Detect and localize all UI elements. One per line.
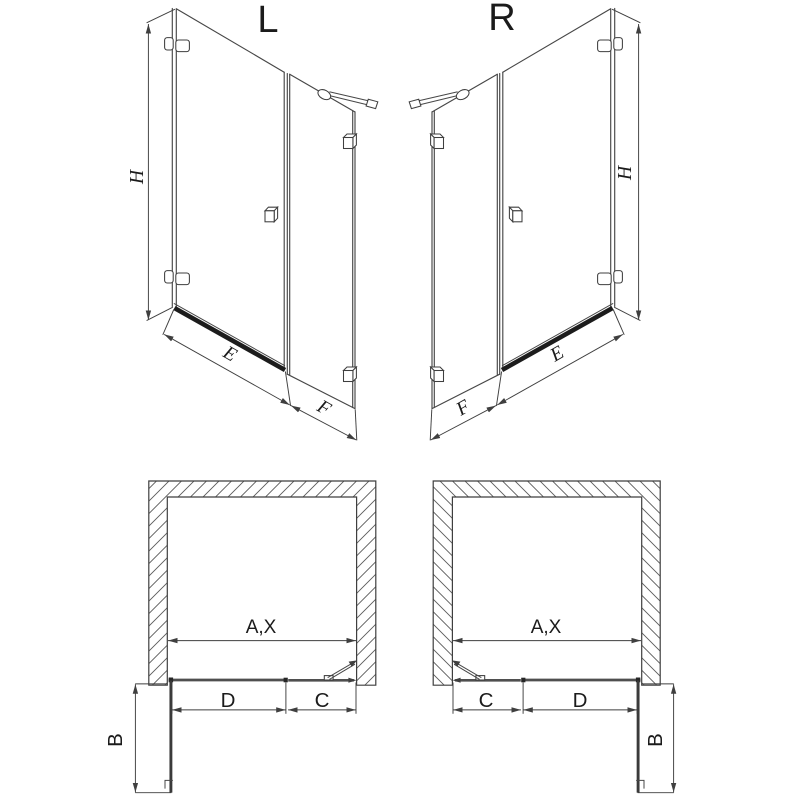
dim-label-h-right: H xyxy=(615,165,636,181)
dim-label-ax-left: A,X xyxy=(246,617,277,638)
view-iso-right xyxy=(409,9,640,441)
panel-wall-anchor-arrow xyxy=(348,678,356,683)
dim-label-e-right: E xyxy=(546,342,568,367)
wall-section-hatched xyxy=(149,481,376,685)
support-bar xyxy=(316,88,378,109)
dim-label-c-left: C xyxy=(315,689,330,712)
iso-right-linework xyxy=(409,9,640,441)
dim-label-b-left: B xyxy=(104,733,127,747)
panel-wall-bracket-top xyxy=(344,134,357,149)
open-door xyxy=(165,681,173,793)
technical-drawing-canvas: L H E F R H E F A,X D C B A,X C D B xyxy=(0,0,800,800)
support-bar-pivot xyxy=(316,88,332,102)
dim-label-d-left: D xyxy=(221,689,236,712)
hinge-top xyxy=(165,38,190,52)
fixed-panel-glass xyxy=(287,74,355,409)
view-iso-left xyxy=(147,9,378,441)
door-panel-junction xyxy=(284,678,288,683)
title-left-version: L xyxy=(257,0,278,41)
dim-label-ax-right: A,X xyxy=(531,617,562,638)
dim-label-f-right: F xyxy=(452,396,475,421)
dim-label-c-right: C xyxy=(479,689,494,712)
dim-label-e-left: E xyxy=(218,342,240,367)
hinge-bottom xyxy=(165,271,190,285)
dim-label-d-right: D xyxy=(573,689,588,712)
drawing-page: L H E F R H E F A,X D C B A,X C D B xyxy=(0,0,800,800)
dim-door-open-lines xyxy=(135,684,171,793)
title-right-version: R xyxy=(488,0,515,39)
dim-label-b-right: B xyxy=(644,733,667,747)
dim-label-h-left: H xyxy=(127,169,148,185)
wall-profile xyxy=(172,9,176,309)
support-bar-wall-cap xyxy=(366,99,378,108)
support-bar-plan xyxy=(324,660,357,680)
door-handle xyxy=(265,207,278,222)
dim-label-f-left: F xyxy=(312,396,335,421)
panel-wall-bracket-bottom xyxy=(344,367,357,382)
labels: L H E F R H E F A,X D C B A,X C D B xyxy=(104,0,667,747)
